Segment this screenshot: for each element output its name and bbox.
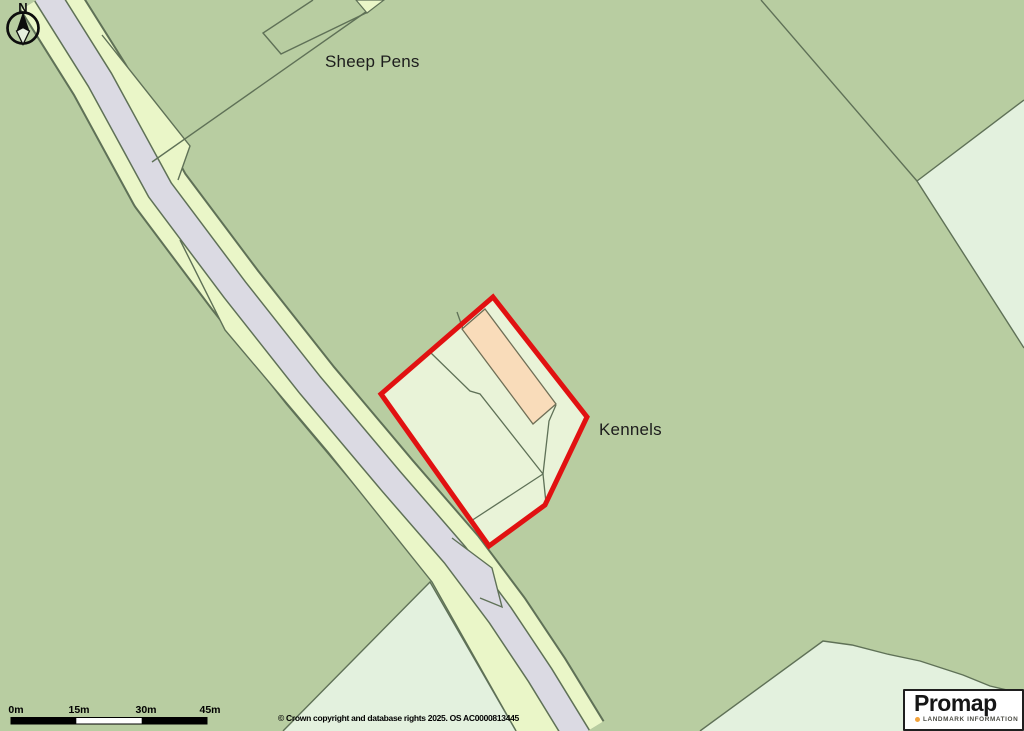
label-sheep-pens: Sheep Pens [325, 52, 420, 72]
scale-tick-15m: 15m [68, 704, 89, 716]
promap-logo: Promap LANDMARK INFORMATION [903, 689, 1024, 731]
promap-tagline: LANDMARK INFORMATION [915, 716, 1022, 723]
scale-tick-30m: 30m [135, 704, 156, 716]
scale-bar [11, 718, 207, 725]
site-plan-map: N Sheep Pens Kennels 0m 15m 30m 45m © Cr… [0, 0, 1024, 731]
promap-tagline-text: LANDMARK INFORMATION [923, 716, 1018, 723]
north-arrow-letter: N [18, 0, 27, 15]
scale-tick-0m: 0m [8, 704, 23, 716]
label-kennels: Kennels [599, 420, 662, 440]
scale-tick-45m: 45m [199, 704, 220, 716]
map-canvas [0, 0, 1024, 731]
promap-wordmark: Promap [914, 691, 1022, 715]
landmark-dot-icon [915, 717, 920, 722]
copyright-text: © Crown copyright and database rights 20… [278, 713, 519, 723]
